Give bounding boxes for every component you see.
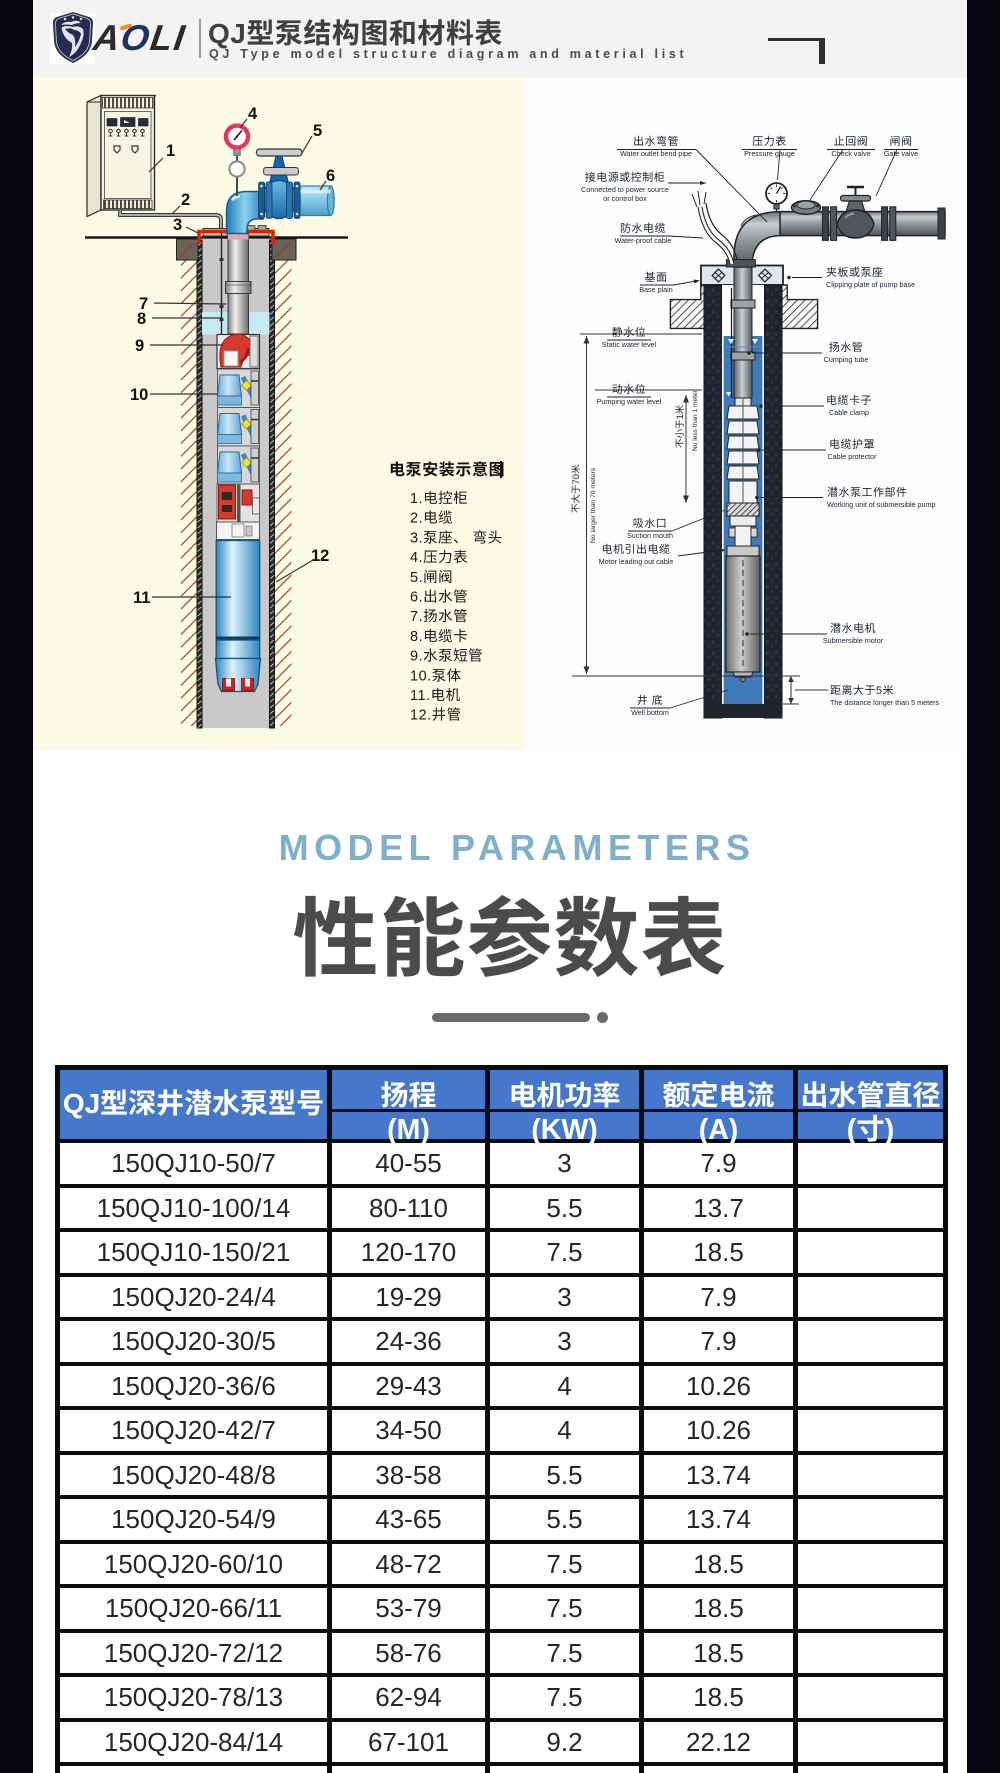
svg-text:11.电机: 11.电机 <box>410 684 461 705</box>
svg-text:不大于70米: 不大于70米 <box>568 464 582 513</box>
svg-text:Connected to power source: Connected to power source <box>581 185 669 194</box>
svg-text:or control box: or control box <box>603 194 647 203</box>
svg-text:7.扬水管: 7.扬水管 <box>410 605 468 626</box>
svg-text:静水位: 静水位 <box>612 324 647 340</box>
svg-text:No less than 1 meter: No less than 1 meter <box>692 389 699 451</box>
svg-text:止回阀: 止回阀 <box>834 133 869 149</box>
svg-text:3.泵座、 弯头: 3.泵座、 弯头 <box>410 526 503 547</box>
svg-text:出水弯管: 出水弯管 <box>633 133 679 149</box>
svg-text:1: 1 <box>166 142 175 160</box>
svg-text:接电源或控制柜: 接电源或控制柜 <box>585 169 666 185</box>
svg-text:Base plain: Base plain <box>639 285 673 294</box>
svg-text:8.电缆卡: 8.电缆卡 <box>410 625 468 646</box>
svg-text:Clipping plate of pump base: Clipping plate of pump base <box>826 280 915 289</box>
svg-text:Gate valve: Gate valve <box>884 149 918 158</box>
svg-text:10: 10 <box>130 386 148 404</box>
svg-text:12.井管: 12.井管 <box>410 704 462 725</box>
svg-text:压力表: 压力表 <box>752 133 787 149</box>
svg-text:潜水电机: 潜水电机 <box>830 620 876 636</box>
svg-text:The distance longer than 5 met: The distance longer than 5 meters <box>830 698 939 707</box>
svg-text:电缆护罩: 电缆护罩 <box>829 436 875 452</box>
svg-text:Water-proof cable: Water-proof cable <box>615 236 672 245</box>
svg-text:9.水泵短管: 9.水泵短管 <box>410 645 483 666</box>
svg-text:5: 5 <box>313 122 322 140</box>
svg-text:4.压力表: 4.压力表 <box>410 546 468 567</box>
svg-text:潜水泵工作部件: 潜水泵工作部件 <box>827 484 908 500</box>
svg-text:No larger than 70 meters: No larger than 70 meters <box>590 467 597 543</box>
svg-text:Water outlet bend pipe: Water outlet bend pipe <box>620 149 692 158</box>
svg-text:电泵安装示意图: 电泵安装示意图 <box>389 456 505 480</box>
svg-text:9: 9 <box>135 337 144 355</box>
svg-text:电缆卡子: 电缆卡子 <box>826 392 872 408</box>
svg-text:8: 8 <box>137 310 146 328</box>
svg-text:Pumping water level: Pumping water level <box>597 397 662 406</box>
svg-text:Cable protector: Cable protector <box>827 452 877 461</box>
svg-text:Cable clamp: Cable clamp <box>829 408 869 417</box>
svg-text:4: 4 <box>248 105 258 123</box>
svg-text:Cumping tube: Cumping tube <box>824 355 869 364</box>
svg-text:10.泵体: 10.泵体 <box>410 664 462 685</box>
svg-text:基面: 基面 <box>645 269 668 285</box>
svg-text:扬水管: 扬水管 <box>829 339 864 355</box>
svg-text:防水电缆: 防水电缆 <box>620 220 666 236</box>
svg-text:不小于1米: 不小于1米 <box>672 404 686 448</box>
svg-text:2.电缆: 2.电缆 <box>410 507 453 528</box>
svg-text:Check valve: Check valve <box>831 149 870 158</box>
svg-text:6: 6 <box>326 167 335 185</box>
svg-text:11: 11 <box>133 589 150 607</box>
svg-text:3: 3 <box>173 216 182 234</box>
svg-text:井 底: 井 底 <box>637 692 664 708</box>
svg-text:6.出水管: 6.出水管 <box>410 586 468 607</box>
svg-text:距离大于5米: 距离大于5米 <box>830 682 894 698</box>
svg-text:Pressure gauge: Pressure gauge <box>744 149 795 158</box>
svg-text:闸阀: 闸阀 <box>890 133 913 149</box>
svg-text:2: 2 <box>181 191 190 209</box>
svg-text:吸水口: 吸水口 <box>633 515 668 531</box>
svg-text:1.电控柜: 1.电控柜 <box>410 487 468 508</box>
svg-text:夹板或泵座: 夹板或泵座 <box>826 264 884 280</box>
svg-text:Motor leading out cable: Motor leading out cable <box>599 557 674 566</box>
svg-text:动水位: 动水位 <box>612 381 647 397</box>
svg-text:Submersible motor: Submersible motor <box>823 636 884 645</box>
svg-text:电机引出电缆: 电机引出电缆 <box>602 541 671 557</box>
svg-text:12: 12 <box>311 547 329 565</box>
svg-text:Static water level: Static water level <box>602 340 657 349</box>
svg-text:5.闸阀: 5.闸阀 <box>410 566 453 587</box>
svg-text:Suction mouth: Suction mouth <box>627 531 673 540</box>
svg-text:Working unit of submersible pu: Working unit of submersible pump <box>827 500 936 509</box>
svg-text:Well bottom: Well bottom <box>631 708 669 717</box>
